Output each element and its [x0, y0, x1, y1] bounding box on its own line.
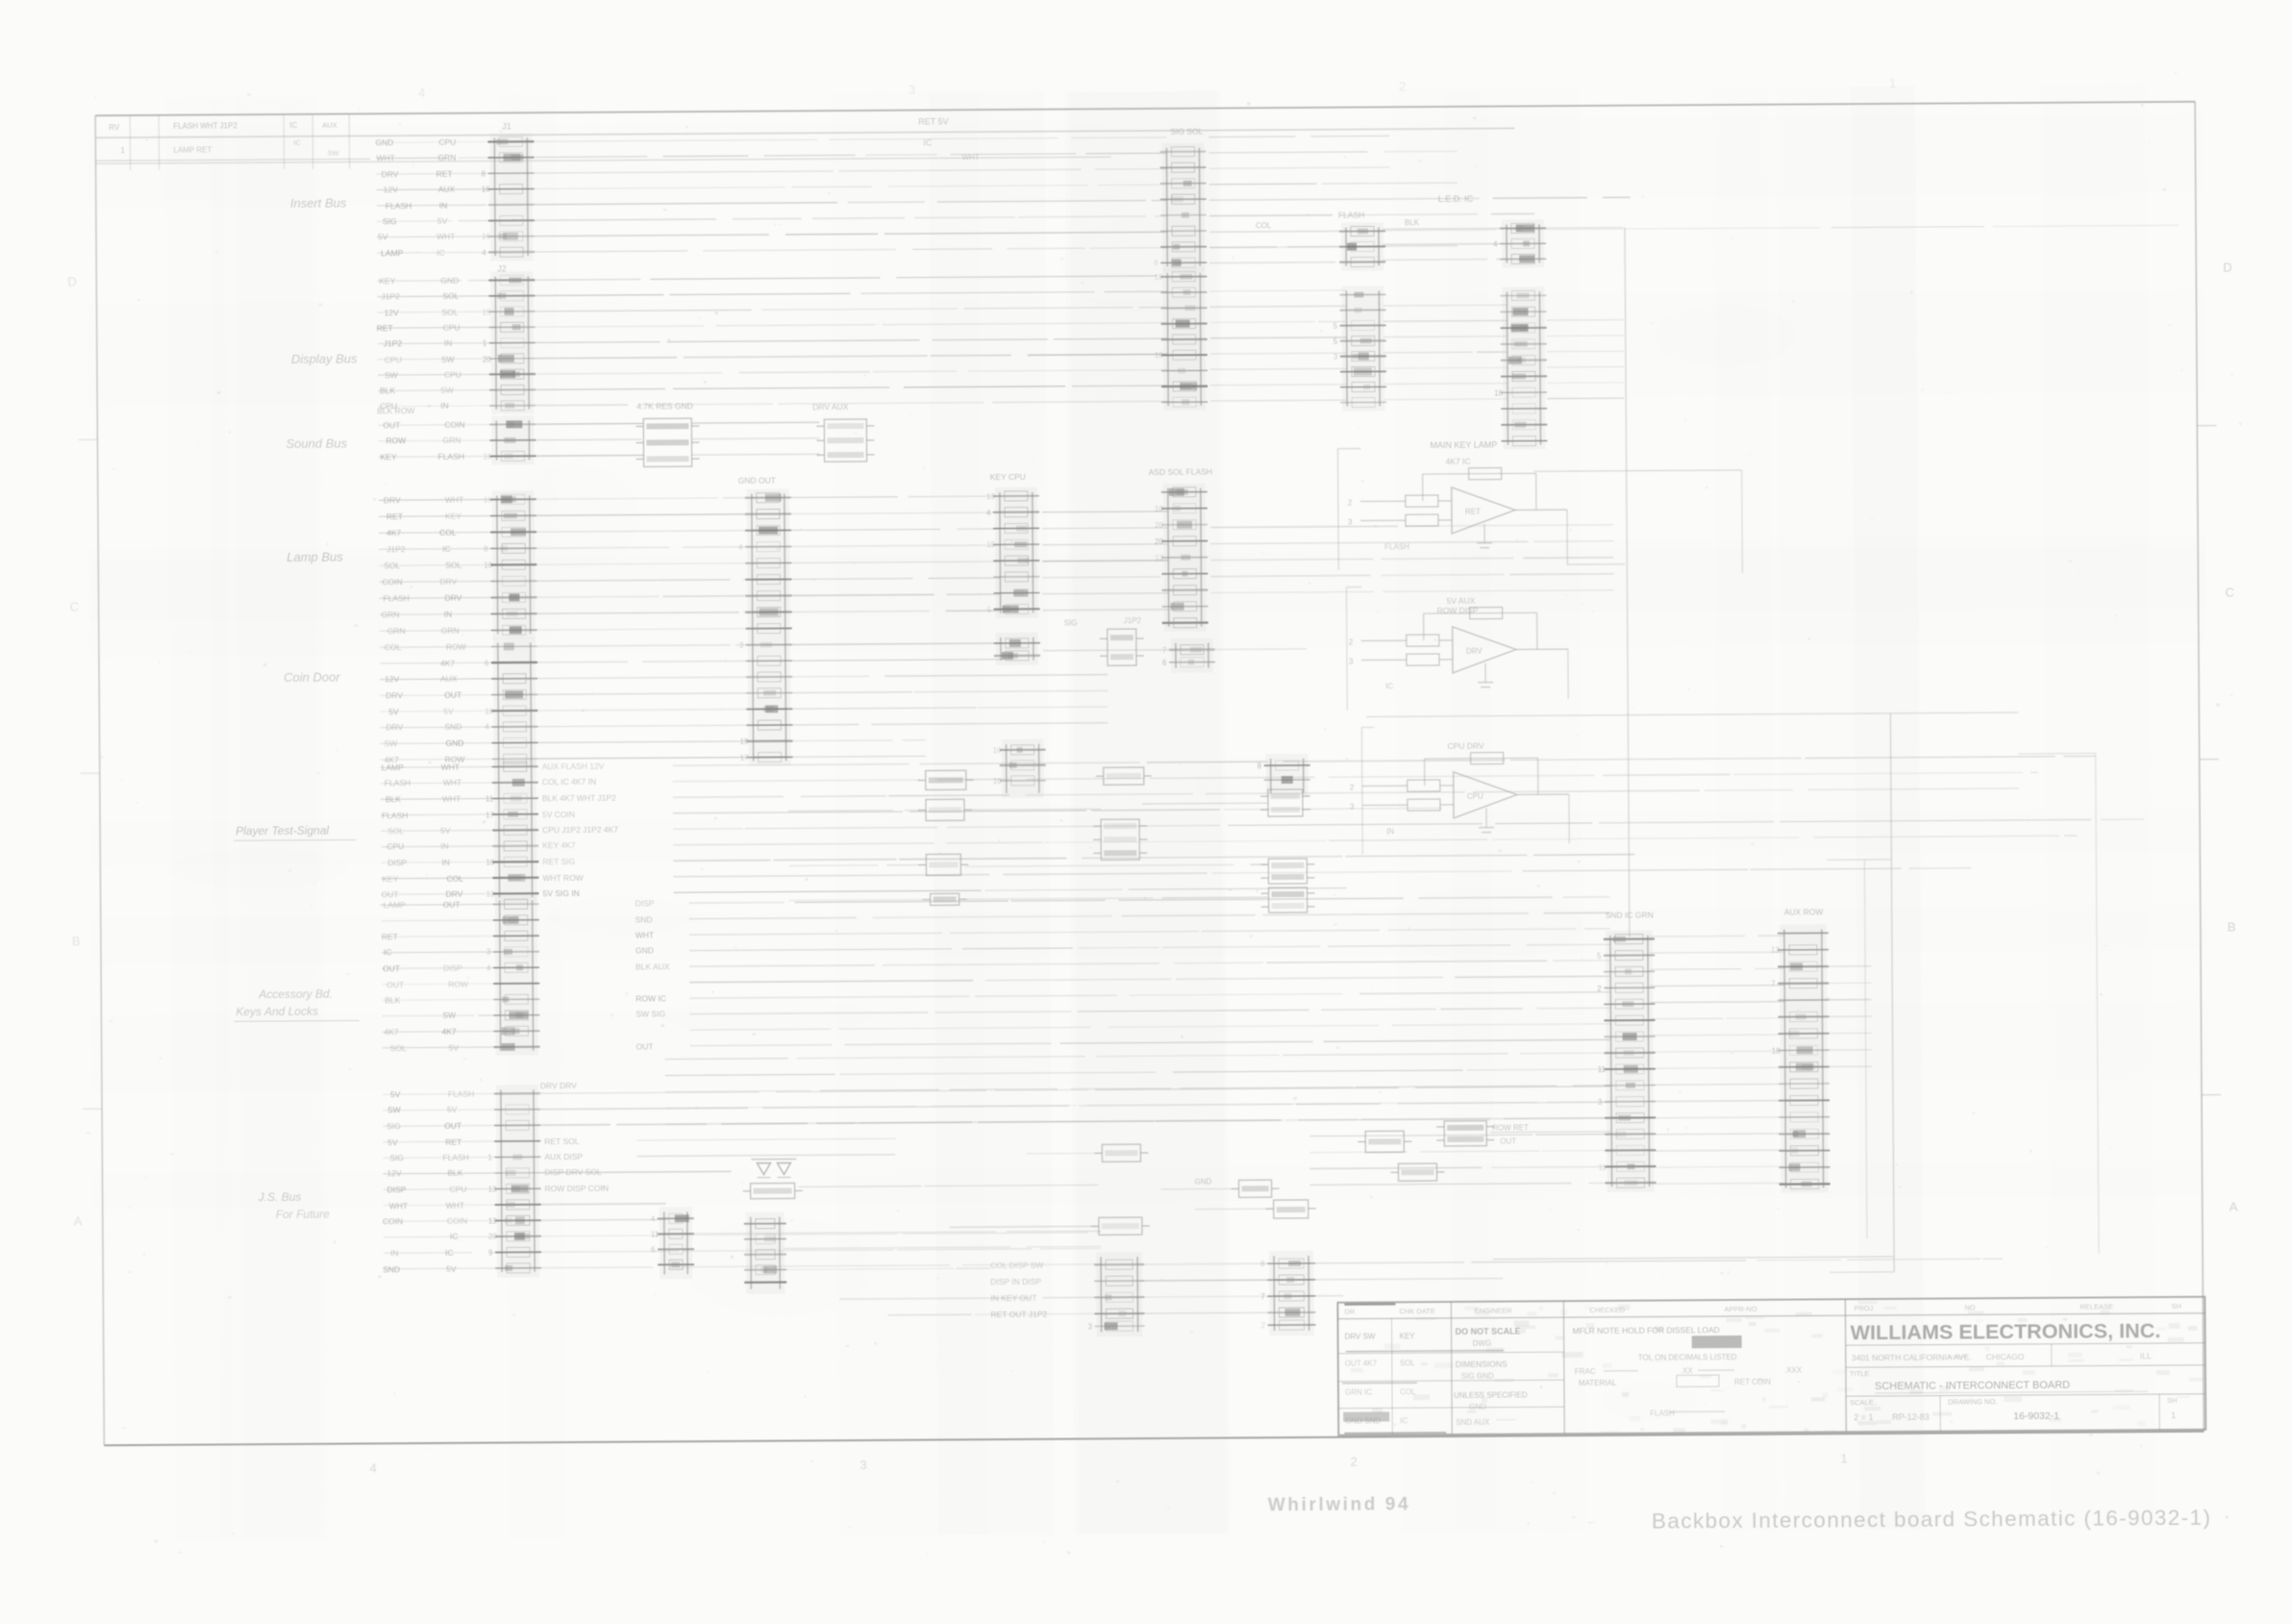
svg-text:FLASH: FLASH: [1338, 210, 1364, 219]
svg-text:OUT: OUT: [444, 690, 461, 700]
svg-text:FLASH: FLASH: [382, 811, 408, 820]
svg-text:18: 18: [485, 707, 494, 715]
svg-text:4K7: 4K7: [440, 659, 455, 668]
svg-text:4: 4: [418, 86, 425, 100]
svg-text:IC: IC: [445, 1248, 454, 1258]
svg-text:16: 16: [484, 453, 493, 462]
svg-text:LAMP: LAMP: [384, 900, 407, 910]
svg-text:5V: 5V: [446, 1264, 457, 1274]
svg-text:16: 16: [484, 496, 493, 505]
svg-text:SND: SND: [444, 722, 461, 732]
svg-text:5V: 5V: [443, 707, 454, 716]
svg-text:RET: RET: [445, 1137, 461, 1147]
svg-text:GND OUT: GND OUT: [738, 476, 776, 486]
svg-text:NO: NO: [1964, 1303, 1975, 1312]
svg-text:5V: 5V: [390, 1089, 401, 1099]
svg-text:COIN: COIN: [383, 1216, 403, 1226]
svg-text:3: 3: [1349, 658, 1354, 666]
svg-text:C: C: [70, 599, 79, 613]
svg-text:AUX: AUX: [440, 674, 458, 684]
svg-text:2: 2: [1350, 784, 1355, 792]
svg-text:3: 3: [1348, 518, 1353, 527]
svg-text:SIG: SIG: [389, 1153, 404, 1162]
svg-text:4: 4: [482, 249, 486, 258]
svg-text:5V: 5V: [437, 216, 448, 226]
svg-text:SH: SH: [2167, 1396, 2177, 1405]
svg-text:COL: COL: [446, 874, 463, 884]
svg-text:BLK AUX: BLK AUX: [635, 962, 670, 971]
svg-text:WHT: WHT: [436, 232, 455, 241]
svg-text:IC: IC: [450, 1232, 459, 1241]
svg-text:4: 4: [485, 723, 489, 732]
svg-text:2: 2: [1350, 1455, 1357, 1469]
svg-text:SOL: SOL: [442, 291, 459, 301]
svg-text:GND: GND: [440, 276, 459, 286]
svg-text:LAMP: LAMP: [382, 762, 405, 772]
svg-text:16: 16: [482, 233, 491, 241]
svg-text:4: 4: [486, 964, 491, 973]
svg-text:OUT: OUT: [383, 963, 400, 973]
svg-text:6: 6: [485, 660, 489, 668]
svg-text:B: B: [2228, 919, 2236, 934]
svg-text:B: B: [72, 934, 81, 948]
svg-text:1: 1: [487, 1154, 492, 1162]
svg-text:3: 3: [1350, 803, 1355, 812]
svg-text:20: 20: [488, 1232, 498, 1240]
svg-text:SIG: SIG: [386, 1121, 401, 1131]
svg-text:WHT: WHT: [441, 762, 460, 772]
svg-text:DR: DR: [1344, 1308, 1355, 1316]
svg-text:BLK: BLK: [385, 995, 400, 1005]
svg-text:FLASH: FLASH: [448, 1089, 474, 1099]
svg-text:DRV: DRV: [386, 690, 403, 700]
svg-text:17: 17: [486, 811, 495, 819]
svg-text:2: 2: [1261, 1321, 1266, 1330]
svg-text:DRV SW: DRV SW: [1345, 1332, 1376, 1340]
svg-text:J1P2: J1P2: [381, 291, 400, 301]
svg-text:WHT: WHT: [445, 495, 463, 505]
svg-text:4.7K RES GND: 4.7K RES GND: [636, 401, 693, 411]
svg-text:9: 9: [488, 1249, 493, 1258]
svg-text:D: D: [2223, 260, 2231, 274]
svg-text:IC: IC: [436, 248, 445, 258]
svg-text:OUT: OUT: [443, 900, 461, 910]
svg-text:COIN: COIN: [444, 420, 464, 430]
svg-text:12: 12: [486, 889, 496, 898]
svg-text:IC: IC: [1385, 682, 1393, 690]
svg-text:FLASH: FLASH: [385, 778, 411, 787]
svg-text:11: 11: [486, 794, 494, 803]
svg-text:6: 6: [651, 1245, 656, 1254]
svg-text:KEY: KEY: [379, 276, 395, 286]
svg-text:KEY: KEY: [381, 452, 397, 462]
svg-text:OUT: OUT: [386, 980, 404, 989]
svg-text:1: 1: [2171, 1411, 2176, 1420]
svg-text:KEY: KEY: [445, 512, 461, 521]
svg-text:LAMP: LAMP: [381, 248, 404, 258]
svg-text:2: 2: [1348, 499, 1353, 508]
svg-text:4: 4: [651, 1214, 656, 1223]
svg-text:DISP: DISP: [443, 963, 462, 973]
svg-text:FLASH: FLASH: [442, 1153, 468, 1162]
svg-text:13: 13: [488, 1216, 498, 1225]
svg-text:11: 11: [651, 1230, 660, 1238]
svg-text:OUT: OUT: [383, 420, 400, 430]
svg-text:OUT: OUT: [444, 1121, 461, 1131]
svg-text:2: 2: [1597, 985, 1602, 993]
svg-text:DRV: DRV: [446, 889, 463, 899]
svg-text:BLK ROW: BLK ROW: [377, 406, 414, 415]
svg-text:C: C: [2225, 585, 2233, 599]
svg-text:Whirlwind 94: Whirlwind 94: [1268, 1494, 1411, 1515]
svg-text:OUT 4K7: OUT 4K7: [1345, 1359, 1378, 1367]
svg-text:IN: IN: [390, 1248, 399, 1258]
svg-text:.XX: .XX: [1681, 1366, 1694, 1375]
svg-text:KEY: KEY: [382, 874, 398, 884]
svg-text:COL: COL: [1256, 221, 1272, 230]
svg-text:DRAWING NO.: DRAWING NO.: [1948, 1397, 1997, 1406]
svg-text:SIG: SIG: [383, 216, 397, 226]
svg-text:GND: GND: [445, 738, 463, 748]
svg-text:SW: SW: [387, 1105, 401, 1114]
svg-text:FLASH: FLASH: [438, 452, 464, 462]
svg-text:COL: COL: [439, 528, 457, 537]
svg-text:A: A: [74, 1213, 83, 1228]
svg-text:5V: 5V: [447, 1105, 458, 1114]
svg-text:4: 4: [369, 1461, 376, 1475]
svg-text:DRV: DRV: [384, 495, 401, 505]
svg-text:D: D: [67, 274, 76, 288]
svg-text:DRV: DRV: [386, 722, 403, 732]
svg-text:SND: SND: [383, 1264, 400, 1274]
svg-text:GRN: GRN: [442, 436, 461, 445]
svg-text:OUT: OUT: [382, 889, 399, 899]
svg-text:SW: SW: [384, 738, 397, 748]
svg-text:WHT: WHT: [443, 778, 461, 787]
svg-text:5V: 5V: [387, 1137, 398, 1147]
svg-text:CHICAGO: CHICAGO: [1986, 1352, 2025, 1362]
svg-text:ROW: ROW: [448, 980, 468, 989]
svg-text:SH: SH: [2171, 1302, 2180, 1311]
svg-text:12V: 12V: [385, 674, 400, 684]
svg-text:BLK: BLK: [386, 794, 401, 804]
svg-text:A: A: [2230, 1199, 2238, 1213]
svg-text:5V: 5V: [378, 232, 388, 241]
svg-text:ROW IC: ROW IC: [635, 993, 666, 1003]
svg-text:WHT: WHT: [442, 794, 461, 804]
svg-text:COIN: COIN: [447, 1216, 467, 1226]
svg-text:RET: RET: [386, 512, 403, 521]
svg-text:5V: 5V: [388, 707, 399, 716]
svg-text:ROW: ROW: [386, 436, 406, 445]
svg-text:GRN IC: GRN IC: [1345, 1387, 1372, 1396]
